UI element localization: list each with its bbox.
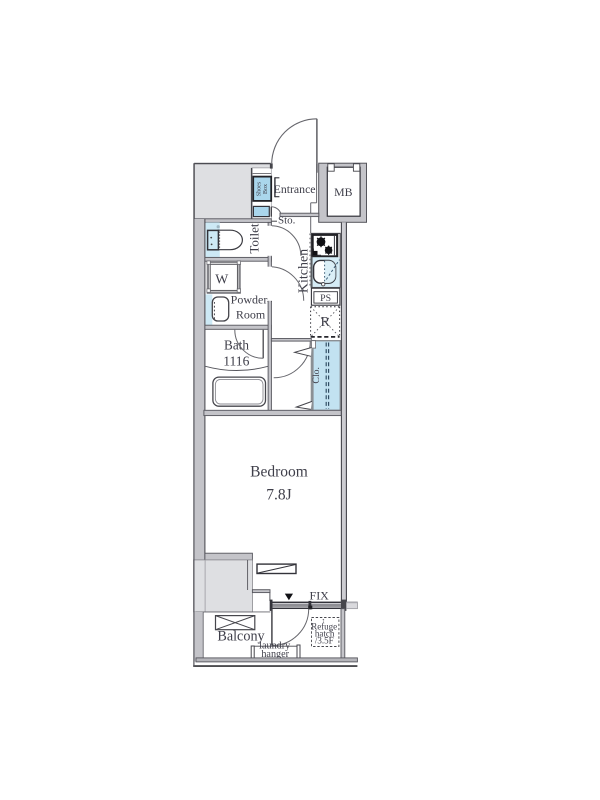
svg-text:R: R [321, 315, 331, 330]
svg-text:Powder: Powder [231, 293, 268, 307]
svg-text:FIX: FIX [310, 589, 330, 603]
svg-text:Clo.: Clo. [311, 367, 322, 384]
svg-text:Kitchen: Kitchen [296, 249, 311, 293]
svg-text:Room: Room [236, 307, 266, 321]
svg-text:7.8J: 7.8J [266, 486, 291, 503]
svg-text:Bedroom: Bedroom [250, 463, 308, 480]
svg-text:Box: Box [263, 184, 269, 194]
svg-text:Shoes: Shoes [257, 181, 263, 196]
svg-text:/3.5F: /3.5F [315, 636, 334, 646]
svg-text:Sto.: Sto. [278, 215, 296, 227]
svg-text:Toilet: Toilet [247, 223, 262, 254]
svg-text:1116: 1116 [223, 353, 249, 368]
svg-text:Entrance: Entrance [274, 182, 316, 196]
svg-text:PS: PS [320, 293, 331, 304]
svg-text:W: W [215, 272, 228, 287]
svg-text:MB: MB [334, 185, 352, 199]
